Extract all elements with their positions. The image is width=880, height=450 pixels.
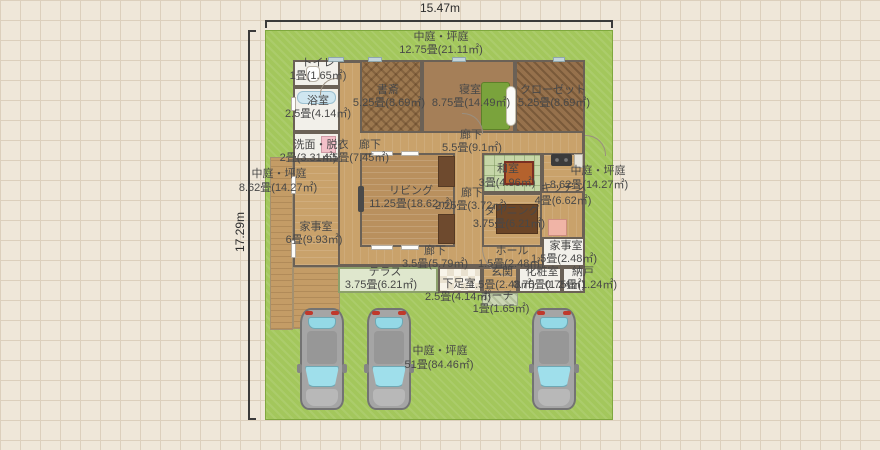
label-utility-east-size: 1.5畳(2.48㎡) (531, 253, 597, 266)
label-garden-right-name: 中庭・坪庭 (571, 165, 626, 178)
label-porch-name: ポーチ (481, 290, 514, 303)
stove[interactable] (551, 154, 572, 166)
label-utility-east-name: 家事室 (550, 240, 583, 253)
car-roof (307, 331, 337, 364)
shoji-door-icon (371, 245, 393, 250)
car-mirror-icon (342, 364, 347, 373)
dimension-line-height (248, 30, 256, 420)
label-terrace-name: テラス (369, 266, 402, 279)
dimension-line-width (265, 20, 613, 28)
car-hood (373, 389, 405, 406)
label-porch-size: 1畳(1.65㎡) (473, 303, 530, 316)
dimension-height-label: 17.29m (233, 212, 247, 252)
label-hallway-main-size: 5.5畳(9.1㎡) (442, 142, 502, 155)
living-cabinet-top[interactable] (438, 156, 455, 187)
label-hallway-south-size: 3.5畳(5.79㎡) (402, 258, 468, 271)
label-bath-name: 浴室 (307, 95, 329, 108)
label-washroom-name: 洗面・脱衣 (294, 139, 349, 152)
car-rear-window (375, 317, 403, 329)
car-taillight-icon (331, 311, 339, 315)
car-mirror-icon (297, 364, 302, 373)
car-windshield (372, 366, 406, 387)
window-icon (452, 57, 466, 62)
label-dining-size: 3.75畳(6.21㎡) (473, 218, 545, 231)
label-bedroom-size: 8.75畳(14.49㎡) (432, 97, 510, 110)
label-hallway-south-name: 廊下 (424, 245, 446, 258)
window-icon (368, 57, 382, 62)
label-closet-name: クローゼット (520, 84, 586, 97)
label-bath-size: 2.5畳(4.14㎡) (285, 108, 351, 121)
label-garden-top-name: 中庭・坪庭 (414, 31, 469, 44)
shoji-door-icon (401, 245, 419, 250)
label-utility-west-name: 家事室 (300, 221, 333, 234)
label-hallway-main-name: 廊下 (460, 129, 482, 142)
label-hallway-west-name: 廊下 (359, 139, 381, 152)
car-hood (306, 389, 338, 406)
label-hall-name: ホール (496, 245, 529, 258)
car-roof (374, 331, 404, 364)
label-hallway-west-size: 4.5畳(7.45㎡) (323, 152, 389, 165)
car-mirror-icon (574, 364, 579, 373)
tv[interactable] (358, 186, 364, 212)
label-toilet-name: トイレ (302, 57, 335, 70)
utility-sink[interactable] (548, 219, 567, 236)
label-study-name: 書斎 (377, 84, 399, 97)
car-rear-window (540, 317, 568, 329)
label-study-size: 5.25畳(8.69㎡) (353, 97, 425, 110)
label-terrace-size: 3.75畳(6.21㎡) (345, 279, 417, 292)
dimension-width-label: 15.47m (420, 1, 460, 15)
car-taillight-icon (398, 311, 406, 315)
label-powder-name: 化粧室 (526, 266, 559, 279)
label-closet-size: 5.25畳(8.69㎡) (518, 97, 590, 110)
car-roof (539, 331, 569, 364)
label-kitchen-size: 4畳(6.62㎡) (535, 195, 592, 208)
label-toilet-size: 1畳(1.65㎡) (290, 70, 347, 83)
label-dining-name: ダイニング (485, 205, 540, 218)
car-taillight-icon (372, 311, 380, 315)
label-storage-size: 0.75畳(1.24㎡) (545, 279, 617, 292)
label-garden-bottom-name: 中庭・坪庭 (413, 345, 468, 358)
label-garden-right-size: 8.62畳(14.27㎡) (550, 179, 628, 192)
car-1[interactable] (300, 308, 344, 410)
label-garden-left-size: 8.62畳(14.27㎡) (239, 182, 317, 195)
label-washitsu-name: 和室 (497, 163, 519, 176)
car-hood (538, 389, 570, 406)
label-storage-name: 納戸 (572, 266, 594, 279)
label-washitsu-size: 3畳(4.96㎡) (479, 177, 536, 190)
label-garden-left-name: 中庭・坪庭 (252, 168, 307, 181)
living-cabinet-bottom[interactable] (438, 214, 455, 244)
car-windshield (537, 366, 571, 387)
car-taillight-icon (305, 311, 313, 315)
window-icon (553, 57, 565, 62)
label-bedroom-name: 寝室 (459, 84, 481, 97)
car-taillight-icon (563, 311, 571, 315)
label-garden-bottom-size: 51畳(84.46㎡) (404, 359, 473, 372)
car-3[interactable] (532, 308, 576, 410)
label-garden-top-size: 12.75畳(21.11㎡) (399, 44, 483, 57)
car-rear-window (308, 317, 336, 329)
car-taillight-icon (537, 311, 545, 315)
car-windshield (305, 366, 339, 387)
shoji-door-icon (401, 151, 419, 156)
label-living-name: リビング (389, 185, 433, 198)
label-utility-west-size: 6畳(9.93㎡) (286, 234, 343, 247)
floorplan-canvas: 15.47m 17.29m (0, 0, 880, 450)
car-mirror-icon (364, 364, 369, 373)
car-mirror-icon (529, 364, 534, 373)
label-entrance-name: 玄関 (491, 266, 513, 279)
